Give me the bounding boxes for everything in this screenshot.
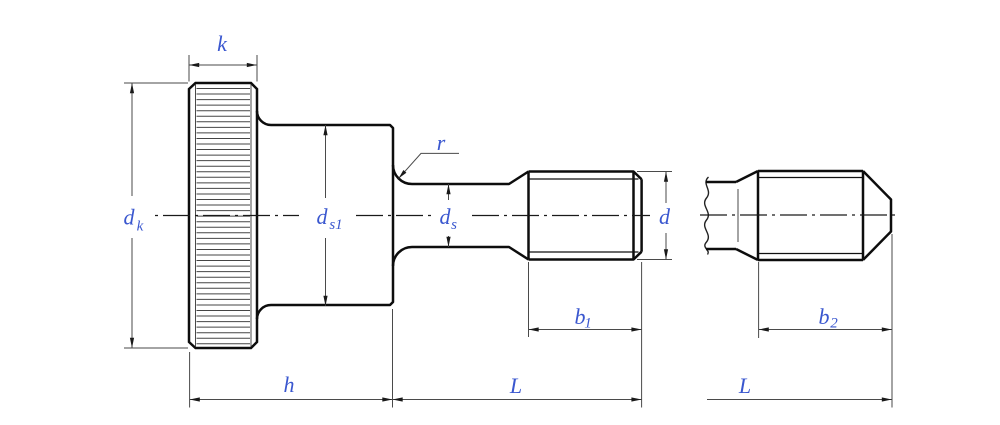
- svg-text:d: d: [440, 204, 452, 229]
- svg-text:2: 2: [830, 316, 838, 332]
- svg-text:s: s: [451, 217, 457, 233]
- svg-text:d: d: [659, 204, 671, 229]
- svg-text:d: d: [317, 204, 329, 229]
- svg-text:r: r: [437, 130, 446, 155]
- svg-text:L: L: [738, 373, 751, 398]
- svg-text:d: d: [124, 205, 136, 230]
- svg-text:1: 1: [584, 316, 592, 332]
- svg-text:s1: s1: [329, 217, 342, 233]
- svg-text:k: k: [137, 219, 144, 235]
- svg-text:b: b: [819, 304, 830, 329]
- svg-text:L: L: [509, 373, 522, 398]
- svg-text:h: h: [284, 372, 295, 397]
- svg-text:k: k: [217, 31, 228, 56]
